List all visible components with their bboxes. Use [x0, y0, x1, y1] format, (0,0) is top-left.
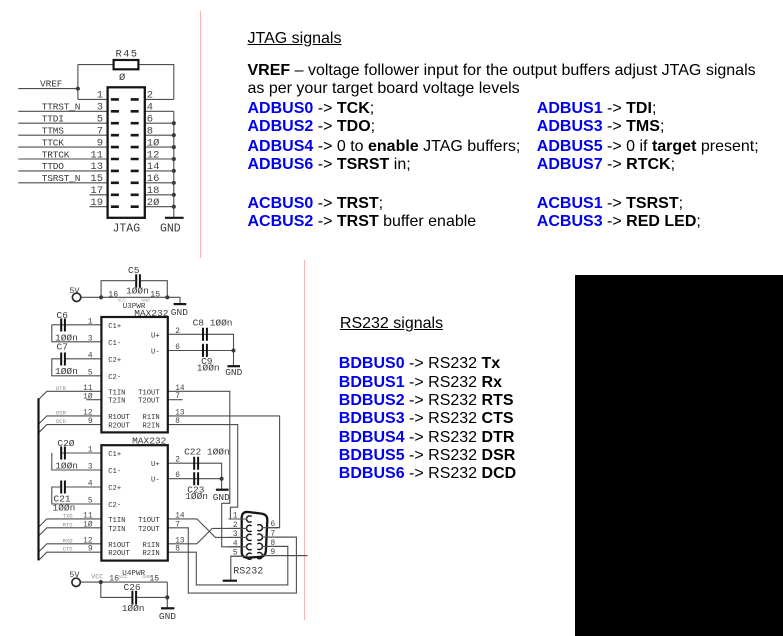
svg-text:15: 15	[150, 290, 160, 299]
svg-text:14: 14	[175, 385, 185, 393]
svg-text:7: 7	[271, 531, 276, 539]
svg-text:15: 15	[149, 574, 159, 583]
svg-text:7: 7	[175, 521, 180, 529]
svg-text:CTS: CTS	[63, 546, 74, 553]
svg-text:13: 13	[175, 409, 185, 417]
svg-text:C2-: C2-	[108, 502, 121, 510]
svg-text:C1-: C1-	[108, 468, 121, 476]
svg-text:C22 1ØØn: C22 1ØØn	[184, 447, 230, 458]
svg-text:R1OUT: R1OUT	[108, 542, 130, 550]
svg-text:MAX232: MAX232	[132, 436, 167, 447]
svg-text:T1IN: T1IN	[108, 389, 125, 397]
svg-text:9: 9	[271, 549, 276, 557]
svg-text:C2+: C2+	[108, 485, 121, 493]
svg-text:RS232: RS232	[233, 567, 263, 578]
svg-text:4: 4	[88, 481, 93, 489]
svg-text:C1-: C1-	[108, 340, 121, 348]
svg-text:U+: U+	[151, 461, 160, 469]
svg-text:TXD: TXD	[63, 512, 74, 519]
svg-text:5V: 5V	[69, 570, 80, 580]
svg-text:C7: C7	[57, 342, 68, 353]
svg-text:1ØØn: 1ØØn	[55, 366, 78, 377]
svg-text:T2IN: T2IN	[108, 526, 125, 534]
svg-text:T1IN: T1IN	[108, 517, 125, 525]
svg-text:R1IN: R1IN	[142, 414, 159, 422]
svg-text:5: 5	[233, 550, 238, 558]
svg-text:11: 11	[83, 385, 93, 393]
svg-text:R2IN: R2IN	[142, 423, 159, 431]
svg-text:1ØØn: 1ØØn	[185, 491, 208, 502]
svg-text:9: 9	[88, 418, 93, 426]
svg-text:5: 5	[88, 498, 93, 506]
svg-text:4: 4	[88, 352, 93, 360]
svg-text:U-: U-	[151, 349, 160, 357]
svg-text:1: 1	[88, 447, 93, 455]
svg-text:C1+: C1+	[108, 451, 121, 459]
svg-text:T2OUT: T2OUT	[138, 398, 160, 406]
svg-text:1ØØn: 1ØØn	[55, 461, 78, 472]
svg-text:4: 4	[233, 540, 238, 548]
svg-text:RXD: RXD	[63, 537, 74, 544]
svg-text:T1OUT: T1OUT	[138, 517, 160, 525]
svg-text:GND: GND	[213, 492, 230, 503]
svg-text:T2IN: T2IN	[108, 398, 125, 406]
svg-text:6: 6	[175, 472, 180, 480]
svg-text:1ØØn: 1ØØn	[126, 286, 149, 297]
svg-text:1Ø: 1Ø	[83, 392, 93, 401]
svg-text:C2-: C2-	[108, 374, 121, 382]
svg-text:VCC: VCC	[119, 574, 128, 580]
svg-text:R1IN: R1IN	[142, 542, 159, 550]
svg-text:8: 8	[271, 540, 276, 548]
svg-text:R2OUT: R2OUT	[108, 423, 130, 431]
svg-text:VCC: VCC	[91, 574, 103, 581]
svg-text:C6: C6	[57, 310, 69, 321]
svg-text:6: 6	[271, 521, 276, 529]
svg-text:GND: GND	[171, 307, 188, 318]
svg-text:12: 12	[83, 537, 93, 545]
svg-text:GND: GND	[225, 367, 242, 378]
svg-text:C1+: C1+	[108, 323, 121, 331]
svg-text:U+: U+	[151, 332, 160, 340]
svg-text:R1OUT: R1OUT	[108, 414, 130, 422]
svg-text:R2OUT: R2OUT	[108, 550, 130, 558]
svg-text:RTS: RTS	[63, 521, 74, 528]
svg-text:C8 1ØØn: C8 1ØØn	[193, 318, 233, 329]
svg-text:9: 9	[88, 546, 93, 554]
svg-text:C5: C5	[128, 265, 140, 276]
svg-text:2: 2	[175, 328, 180, 336]
svg-text:1ØØn: 1ØØn	[122, 603, 145, 614]
svg-text:2: 2	[233, 522, 238, 530]
svg-text:C2Ø: C2Ø	[57, 438, 74, 449]
svg-text:3: 3	[233, 531, 238, 539]
svg-text:1ØØn: 1ØØn	[197, 363, 220, 374]
svg-text:T1OUT: T1OUT	[138, 389, 160, 397]
svg-text:C26: C26	[124, 582, 141, 593]
svg-text:T2OUT: T2OUT	[138, 526, 160, 534]
svg-text:DCD: DCD	[56, 418, 67, 425]
svg-text:8: 8	[175, 418, 180, 426]
svg-text:6: 6	[175, 344, 180, 352]
svg-text:3: 3	[88, 335, 93, 343]
svg-text:13: 13	[175, 537, 185, 545]
svg-text:U-: U-	[151, 477, 160, 485]
svg-text:12: 12	[83, 409, 93, 417]
svg-text:7: 7	[175, 393, 180, 401]
svg-text:5: 5	[88, 369, 93, 377]
svg-text:14: 14	[175, 512, 185, 520]
svg-text:1: 1	[88, 318, 93, 326]
svg-text:DTR: DTR	[56, 385, 67, 392]
svg-text:3: 3	[88, 464, 93, 472]
svg-text:DSR: DSR	[56, 409, 67, 416]
svg-text:1Ø: 1Ø	[83, 520, 93, 529]
svg-text:C2+: C2+	[108, 357, 121, 365]
svg-text:R2IN: R2IN	[142, 550, 159, 558]
svg-text:1: 1	[233, 513, 238, 521]
svg-text:5V: 5V	[69, 286, 80, 296]
svg-text:8: 8	[175, 546, 180, 554]
svg-text:2: 2	[175, 457, 180, 465]
svg-text:11: 11	[83, 512, 93, 520]
svg-text:16: 16	[109, 574, 119, 583]
svg-text:MAX232: MAX232	[134, 308, 169, 319]
svg-text:GND: GND	[159, 611, 176, 622]
